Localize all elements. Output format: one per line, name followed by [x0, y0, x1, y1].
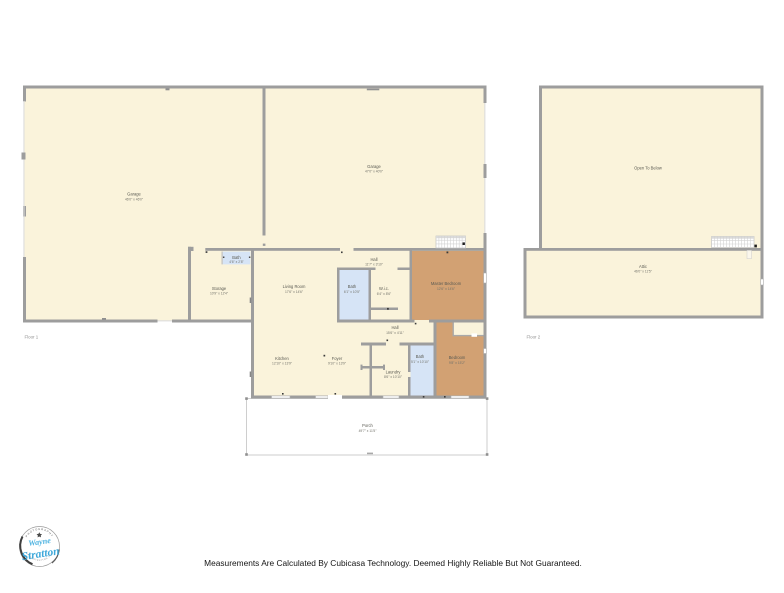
svg-text:Porch: Porch — [362, 423, 373, 428]
svg-text:W.i.c.: W.i.c. — [379, 286, 389, 291]
svg-text:Foyer: Foyer — [332, 356, 343, 361]
svg-text:47'0" x 40'0": 47'0" x 40'0" — [365, 170, 384, 174]
svg-text:Bath: Bath — [416, 354, 425, 359]
svg-text:Living Room: Living Room — [283, 284, 306, 289]
svg-text:17'6" x 14'6": 17'6" x 14'6" — [285, 290, 304, 294]
svg-text:11'7" x 3'10": 11'7" x 3'10" — [365, 262, 384, 266]
svg-text:49'7" x 11'5": 49'7" x 11'5" — [359, 429, 378, 433]
svg-text:15'6" x 4'11": 15'6" x 4'11" — [386, 331, 405, 335]
svg-text:12'6" x 14'6": 12'6" x 14'6" — [437, 287, 456, 291]
svg-text:Master Bedroom: Master Bedroom — [431, 281, 462, 286]
svg-text:Garage: Garage — [127, 192, 141, 197]
svg-text:6'1" x 10'5": 6'1" x 10'5" — [344, 290, 361, 294]
svg-text:5'1" x 10'10": 5'1" x 10'10" — [411, 360, 430, 364]
svg-text:12'10" x 13'9": 12'10" x 13'9" — [272, 361, 293, 365]
svg-text:Kitchen: Kitchen — [275, 356, 289, 361]
svg-text:9'10" x 13'9": 9'10" x 13'9" — [328, 361, 347, 365]
svg-text:Storage: Storage — [212, 286, 227, 291]
svg-text:Bath: Bath — [348, 284, 357, 289]
svg-text:9'8" x 15'2": 9'8" x 15'2" — [449, 361, 466, 365]
svg-text:Measurements Are Calculated By: Measurements Are Calculated By Cubicasa … — [204, 558, 582, 568]
svg-text:Floor 1: Floor 1 — [25, 335, 39, 340]
svg-text:Floor 2: Floor 2 — [527, 335, 541, 340]
svg-text:8'6" x 10'10": 8'6" x 10'10" — [384, 375, 403, 379]
svg-text:Attic: Attic — [639, 264, 647, 269]
svg-text:Open To Below: Open To Below — [634, 166, 662, 171]
svg-text:Laundry: Laundry — [386, 370, 402, 375]
svg-text:4'6" x 2'8": 4'6" x 2'8" — [229, 260, 244, 264]
svg-text:46'0" x 46'0": 46'0" x 46'0" — [125, 197, 144, 201]
svg-text:Bedroom: Bedroom — [449, 355, 466, 360]
svg-text:Hall: Hall — [391, 325, 398, 330]
svg-text:Garage: Garage — [367, 164, 381, 169]
svg-text:Hall: Hall — [370, 257, 377, 262]
svg-text:46'0" x 11'5": 46'0" x 11'5" — [634, 269, 653, 273]
svg-text:6'4" x 8'6": 6'4" x 8'6" — [377, 292, 392, 296]
svg-text:10'9" x 12'4": 10'9" x 12'4" — [210, 291, 229, 295]
svg-text:Bath: Bath — [232, 255, 241, 260]
